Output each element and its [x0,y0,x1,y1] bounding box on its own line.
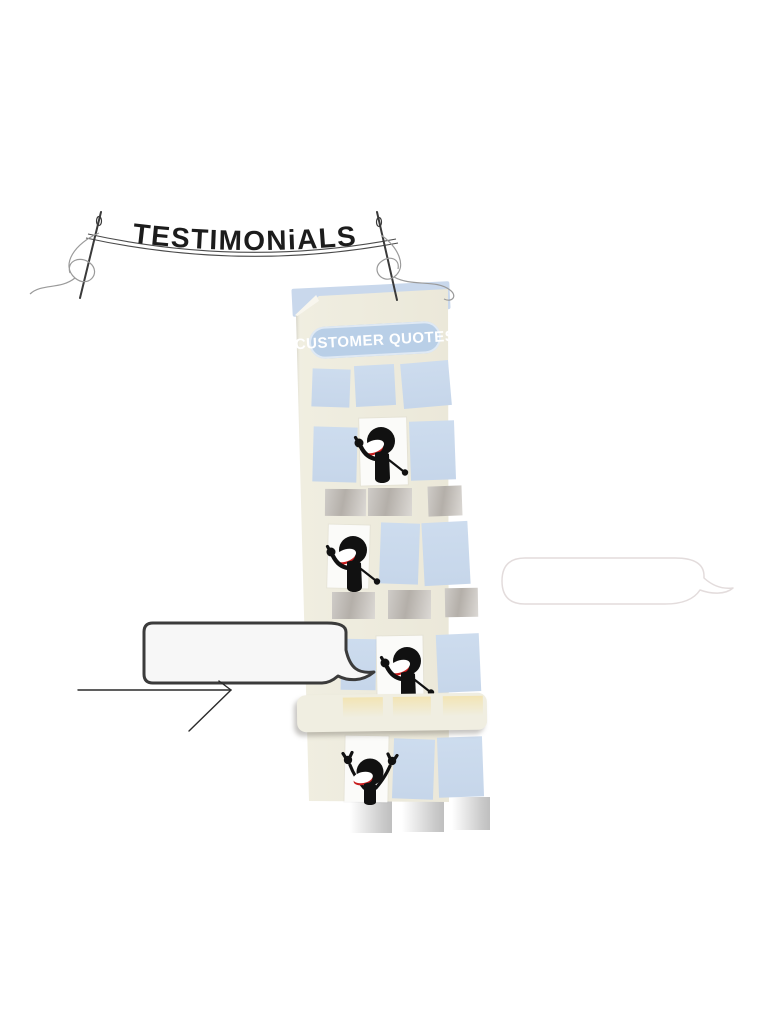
speech-bubble-right [495,550,745,620]
window-gray [427,485,462,516]
figure-cheering [330,744,410,806]
window-blue [436,633,481,693]
window-yellow [393,696,431,717]
window-gray [452,797,490,830]
building-sign-label: CUSTOMER QUOTES [294,327,455,352]
window-gray [388,590,431,619]
window-yellow [443,696,483,717]
window-blue [400,360,452,409]
speech-bubble-left-shape [144,623,374,683]
window-blue [409,420,456,481]
window-blue [437,736,484,798]
figure-waving-1 [344,424,416,488]
window-gray [368,488,412,516]
window-gray [325,489,366,516]
speech-bubble-right-shape [502,558,733,604]
window-gray [445,588,479,618]
window-blue [354,364,396,407]
figure-waving-2 [316,533,388,597]
arrow-line [78,681,231,731]
needle-left-icon [30,212,102,298]
testimonials-banner: TESTIMONiALS [0,195,500,330]
needle-right-icon [377,212,454,300]
banner-title: TESTIMONiALS [131,218,358,256]
window-blue [421,521,470,586]
window-blue [311,368,350,407]
testimonials-page: TESTIMONiALS CUSTOMER QUOTES [0,0,768,1024]
speech-bubble-left [60,612,390,747]
